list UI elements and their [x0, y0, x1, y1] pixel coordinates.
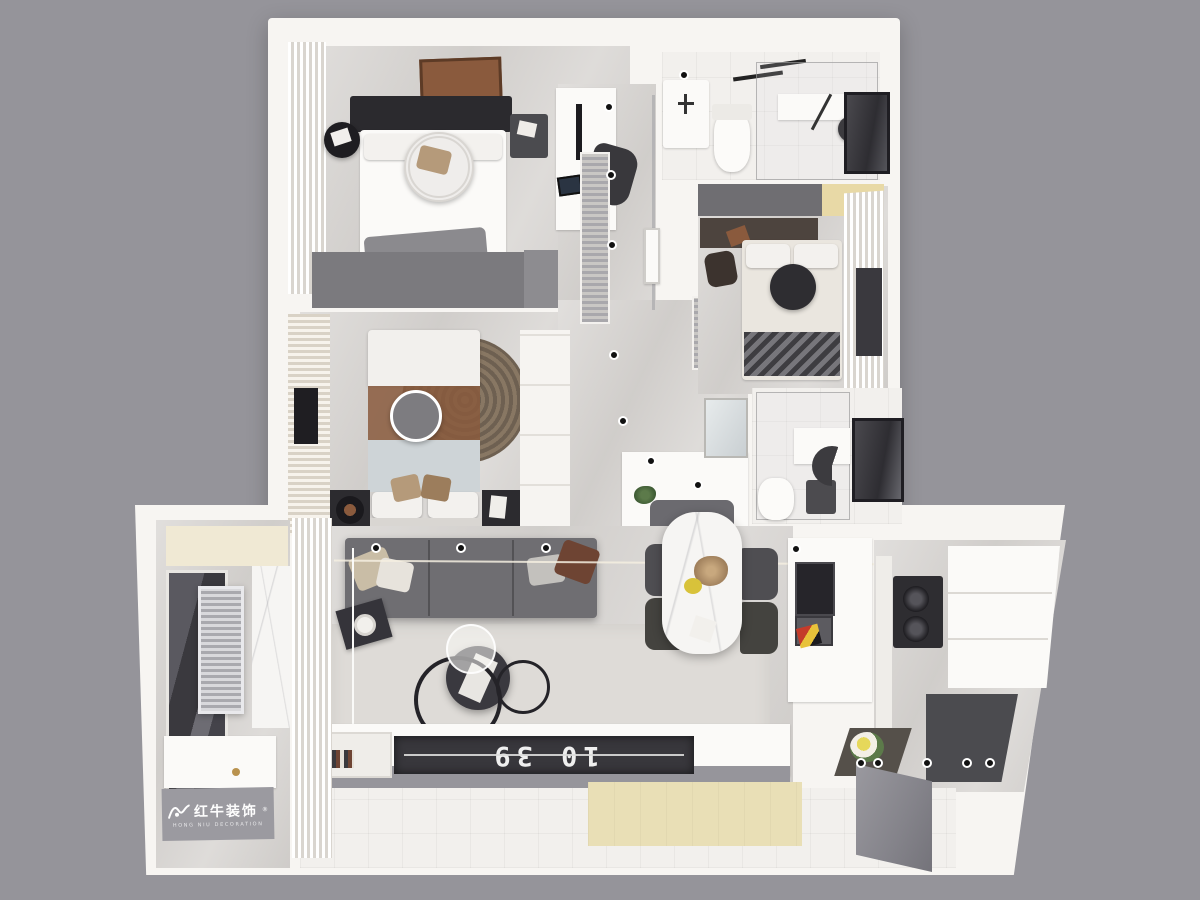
spotlight-dot	[791, 544, 801, 554]
small-bed-herringbone-throw	[744, 332, 840, 376]
spotlight-dot	[606, 170, 616, 180]
shower-head-2	[812, 446, 852, 486]
vinyl-record	[336, 496, 364, 524]
wash-vanity-mirror	[704, 398, 748, 458]
fridge-tall-cabinet	[948, 546, 1060, 688]
wall-light-dot	[856, 758, 866, 768]
hall-wall-frame	[644, 228, 660, 284]
dining-fruit-plate	[684, 578, 702, 594]
bedroom2-bed-top	[368, 330, 480, 386]
cabinet-knob-dot	[985, 758, 995, 768]
sofa-button-dot	[456, 543, 466, 553]
spotlight-dot	[604, 102, 614, 112]
bull-icon	[168, 803, 190, 819]
cabinet-knob-dot	[962, 758, 972, 768]
dining-chair-right-1	[740, 548, 778, 600]
small-desk-chair	[703, 250, 738, 289]
glass-side-table	[446, 624, 496, 674]
sofa-button-dot	[541, 543, 551, 553]
registered-mark: ®	[262, 806, 268, 813]
shower-shelf	[778, 94, 846, 120]
master-bed-headboard	[350, 96, 512, 132]
balcony-cabinet	[164, 736, 276, 788]
sofa-seam-1	[428, 540, 430, 616]
toilet-1-tank	[712, 104, 752, 120]
bathroom2-window	[852, 418, 904, 502]
sofa-seam-2	[512, 540, 514, 616]
bathroom1-vanity	[663, 80, 709, 148]
spotlight-dot	[693, 480, 703, 490]
cooktop-burner-2	[903, 616, 929, 642]
cooktop-burner-1	[903, 586, 929, 612]
vanity-faucet-2	[684, 94, 687, 114]
small-wardrobe-gray	[698, 184, 822, 216]
side-table-cup	[354, 614, 376, 636]
sofa-button-dot	[371, 543, 381, 553]
balcony-cabinet-knob	[232, 768, 240, 776]
toilet-2	[758, 478, 794, 520]
balcony-upper-cabinet	[166, 526, 288, 566]
bathroom1-window	[844, 92, 890, 174]
brand-name: 红牛装饰	[194, 800, 258, 821]
wall-light-dot	[873, 758, 883, 768]
drying-rack	[198, 586, 244, 714]
small-bed-pillow-left	[746, 244, 790, 268]
living-balcony-curtain	[292, 518, 332, 858]
master-wardrobe	[312, 252, 524, 308]
tv-clock-split-line	[404, 754, 684, 756]
brand-logo-plate: 红牛装饰 ® HONG NIU DECORATION	[162, 787, 275, 841]
balcony-wall-marble	[252, 566, 290, 728]
nightstand-card	[489, 495, 507, 519]
decor-ring-small	[496, 660, 550, 714]
spotlight-dot	[679, 70, 689, 80]
fridge-door-line-2	[948, 638, 1048, 640]
floorplan-render: 10 39 红牛装饰 ®	[0, 0, 1200, 900]
bedroom2-brown-cushion-2	[420, 474, 452, 502]
entry-open-door	[856, 764, 932, 872]
study-runner-rug	[580, 152, 610, 324]
fridge-door-line	[948, 592, 1052, 594]
spotlight-dot	[607, 240, 617, 250]
dining-chair-right-2	[740, 602, 778, 654]
wall-light-dot	[922, 758, 932, 768]
brand-subtitle: HONG NIU DECORATION	[173, 821, 264, 829]
spotlight-dot	[646, 456, 656, 466]
bedroom2-wardrobe	[520, 330, 570, 534]
spotlight-dot	[618, 416, 628, 426]
bedroom2-tv	[294, 388, 318, 444]
entry-mat	[588, 782, 802, 846]
small-bedroom-window	[856, 268, 882, 356]
bedroom2-gray-disc	[390, 390, 442, 442]
spotlight-dot	[609, 350, 619, 360]
small-bed-round-pillow	[770, 264, 816, 310]
built-in-oven	[795, 562, 835, 616]
